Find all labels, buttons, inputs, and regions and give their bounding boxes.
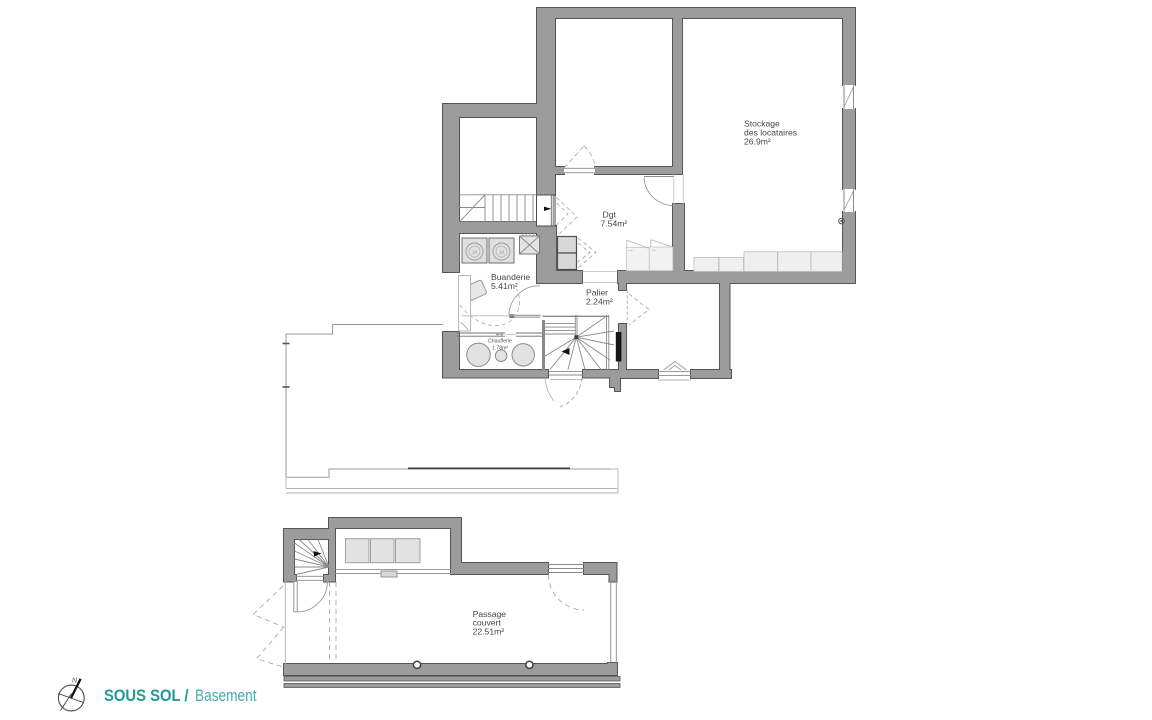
- svg-text:7.54m²: 7.54m²: [601, 219, 628, 229]
- svg-text:5.41m²: 5.41m²: [491, 281, 518, 291]
- svg-text:22.51m²: 22.51m²: [473, 626, 505, 636]
- svg-text:2.24m²: 2.24m²: [586, 297, 613, 307]
- svg-text:10: 10: [472, 250, 478, 255]
- svg-text:Basement: Basement: [195, 687, 257, 705]
- svg-text:26.9m²: 26.9m²: [744, 137, 771, 147]
- svg-text:SOUS SOL /: SOUS SOL /: [104, 687, 189, 705]
- svg-text:1.78m²: 1.78m²: [492, 346, 508, 352]
- svg-text:Chaufferie: Chaufferie: [488, 339, 512, 345]
- svg-text:10: 10: [499, 250, 505, 255]
